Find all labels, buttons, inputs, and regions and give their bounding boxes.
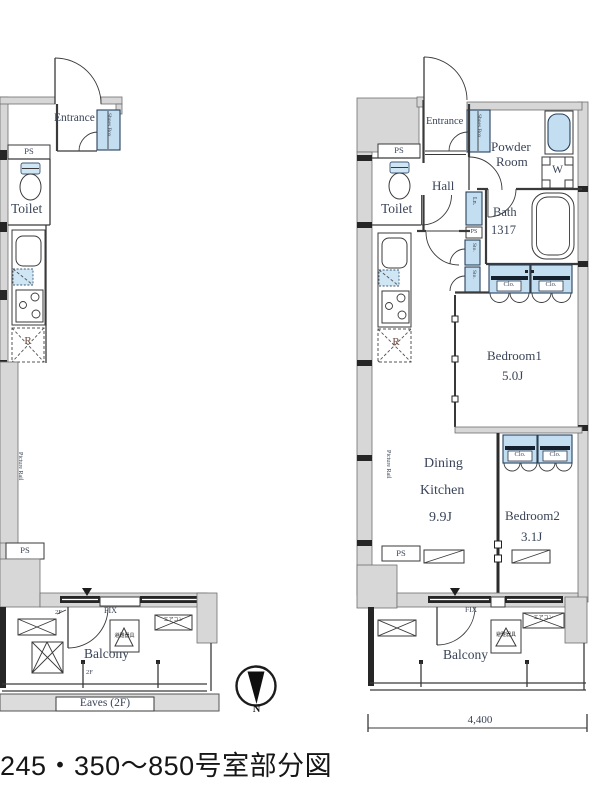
toilet-icon xyxy=(20,163,41,200)
hall-dk-door-arc xyxy=(426,231,459,265)
kitchen-sink-icon xyxy=(16,236,41,266)
label-washer: W xyxy=(549,165,566,177)
label-ps: PS xyxy=(6,546,44,555)
label-aircon: エアコン xyxy=(523,616,564,621)
label-ps: PS xyxy=(466,229,482,235)
label-fix: FIX xyxy=(104,607,117,615)
label-ps: PS xyxy=(8,147,50,156)
label-aircon: エアコン xyxy=(155,618,192,623)
sliding-partition xyxy=(452,295,458,427)
equipment-box xyxy=(378,620,416,636)
stove-icon xyxy=(382,291,409,323)
label-entrance: Entrance xyxy=(54,113,95,125)
label-linen: Ln. xyxy=(471,197,477,205)
label-dk-size: 9.9J xyxy=(429,511,452,525)
label-fridge: R xyxy=(20,336,36,347)
right-plan xyxy=(357,57,588,732)
label-toilet: Toilet xyxy=(381,202,412,216)
label-kitchen: Kitchen xyxy=(420,484,464,498)
label-floor-mark: 2F xyxy=(86,670,93,677)
label-closet: Clo. xyxy=(543,452,567,459)
label-bath-size: 1317 xyxy=(491,224,516,237)
label-fridge: R xyxy=(388,337,404,348)
label-bedroom2: Bedroom2 xyxy=(505,509,560,522)
floor-plan-page: Entrance Shoes Box PS Toilet R Picture R… xyxy=(0,0,600,800)
label-bath: Bath xyxy=(493,206,517,219)
label-closet: Clo. xyxy=(508,452,532,459)
label-evac-hatch: 避難器具 xyxy=(491,633,521,638)
label-shoes-box: Shoes Box xyxy=(476,114,482,138)
sliding-partition xyxy=(495,433,502,595)
label-dining: Dining xyxy=(424,457,463,471)
toilet-icon xyxy=(389,162,410,199)
label-picture-rail: Picture Rail xyxy=(385,450,391,479)
label-ps: PS xyxy=(382,549,420,558)
label-storage: Sto. xyxy=(471,243,477,252)
label-entrance: Entrance xyxy=(426,117,463,128)
label-ps: PS xyxy=(378,146,420,155)
label-balcony: Balcony xyxy=(443,648,488,662)
label-floor-mark: 2F xyxy=(55,610,62,617)
stove-icon xyxy=(16,290,43,322)
label-eaves: Eaves (2F) xyxy=(56,698,154,710)
label-shoes-box: Shoes Box xyxy=(106,113,112,137)
evac-hatch-box xyxy=(32,642,63,673)
label-fix: FIX xyxy=(465,606,477,614)
label-balcony: Balcony xyxy=(84,647,129,661)
label-toilet: Toilet xyxy=(11,202,42,216)
label-hall: Hall xyxy=(432,179,454,192)
balcony-door-arc xyxy=(68,607,108,648)
fix-window xyxy=(100,597,140,606)
plan-caption: 245・350〜850号室部分図 xyxy=(0,744,332,783)
bathtub-icon xyxy=(532,193,574,259)
label-bedroom1-size: 5.0J xyxy=(502,369,523,382)
equipment-box xyxy=(18,619,56,635)
washbasin-icon xyxy=(545,111,573,154)
fix-window xyxy=(491,597,505,607)
toilet-door-arc xyxy=(422,195,452,225)
entrance-door-arc xyxy=(424,57,467,100)
label-storage: Sto. xyxy=(471,270,477,279)
entrance-door-arc xyxy=(55,58,101,104)
kitchen-sink-icon xyxy=(382,238,407,268)
compass-north-label: N xyxy=(247,705,266,716)
label-powder-room: Powder xyxy=(491,140,531,153)
label-evac-hatch: 避難器具 xyxy=(110,634,139,639)
floor-symbol xyxy=(424,550,550,563)
label-bedroom2-size: 3.1J xyxy=(521,530,542,543)
dimension-label: 4,400 xyxy=(449,715,511,726)
label-powder-room: Room xyxy=(496,155,528,168)
label-closet: Clo. xyxy=(539,282,563,289)
label-bedroom1: Bedroom1 xyxy=(487,349,542,362)
label-picture-rail: Picture Rail xyxy=(17,452,23,481)
label-closet: Clo. xyxy=(497,282,521,289)
north-compass-icon xyxy=(237,667,276,706)
